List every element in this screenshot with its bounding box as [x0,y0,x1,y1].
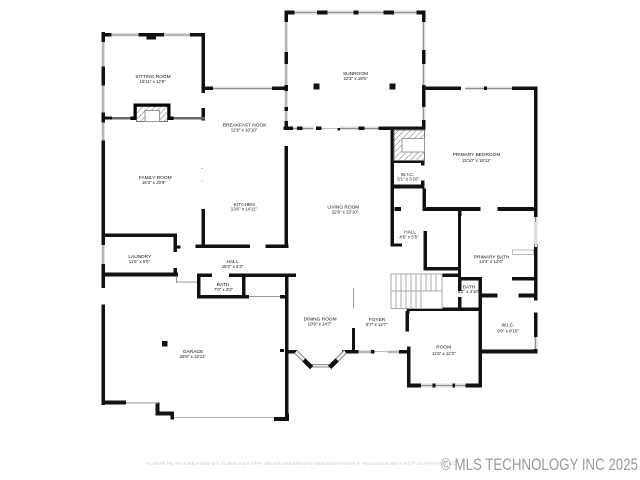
svg-text:PRIMARY BEDROOM: PRIMARY BEDROOM [453,152,501,158]
svg-text:22'3" x 18'6": 22'3" x 18'6" [343,76,368,81]
svg-text:8'7" x 12'7": 8'7" x 12'7" [366,322,388,327]
svg-text:12'4" x 12'6": 12'4" x 12'6" [479,259,504,264]
svg-text:5'1" x 3'10": 5'1" x 3'10" [397,176,419,181]
svg-text:9'0" x 8'10": 9'0" x 8'10" [497,328,519,333]
svg-text:12'6" x 10'10": 12'6" x 10'10" [231,128,258,133]
svg-text:11'6" x 6'5": 11'6" x 6'5" [129,259,151,264]
svg-text:5'2" x 4'10": 5'2" x 4'10" [458,289,480,294]
svg-text:4'6" x 5'5": 4'6" x 5'5" [399,235,419,240]
svg-text:29'8" x 22'11": 29'8" x 22'11" [180,354,207,359]
svg-text:ROOM: ROOM [436,345,451,351]
svg-text:W.I.C.: W.I.C. [501,323,514,329]
svg-text:10'9" x 14'7": 10'9" x 14'7" [308,321,333,326]
svg-text:© MLS TECHNOLOGY INC 2025: © MLS TECHNOLOGY INC 2025 [441,455,638,474]
svg-text:13'6" x 14'11": 13'6" x 14'11" [231,207,258,212]
svg-text:22'6" x 23'10": 22'6" x 23'10" [332,210,359,215]
svg-text:11'5" x 12'3": 11'5" x 12'3" [432,351,456,356]
svg-text:22'10" x 19'11": 22'10" x 19'11" [462,158,491,163]
svg-text:16'3" x 20'9": 16'3" x 20'9" [142,180,167,185]
svg-text:7'0" x 3'2": 7'0" x 3'2" [214,287,234,292]
svg-text:FLOOR PLAN CREATED BY CUBICASA: FLOOR PLAN CREATED BY CUBICASA APP. MEAS… [146,461,457,466]
svg-text:15'11" x 12'9": 15'11" x 12'9" [139,79,166,84]
svg-text:18'3" x 4'3": 18'3" x 4'3" [222,264,244,269]
